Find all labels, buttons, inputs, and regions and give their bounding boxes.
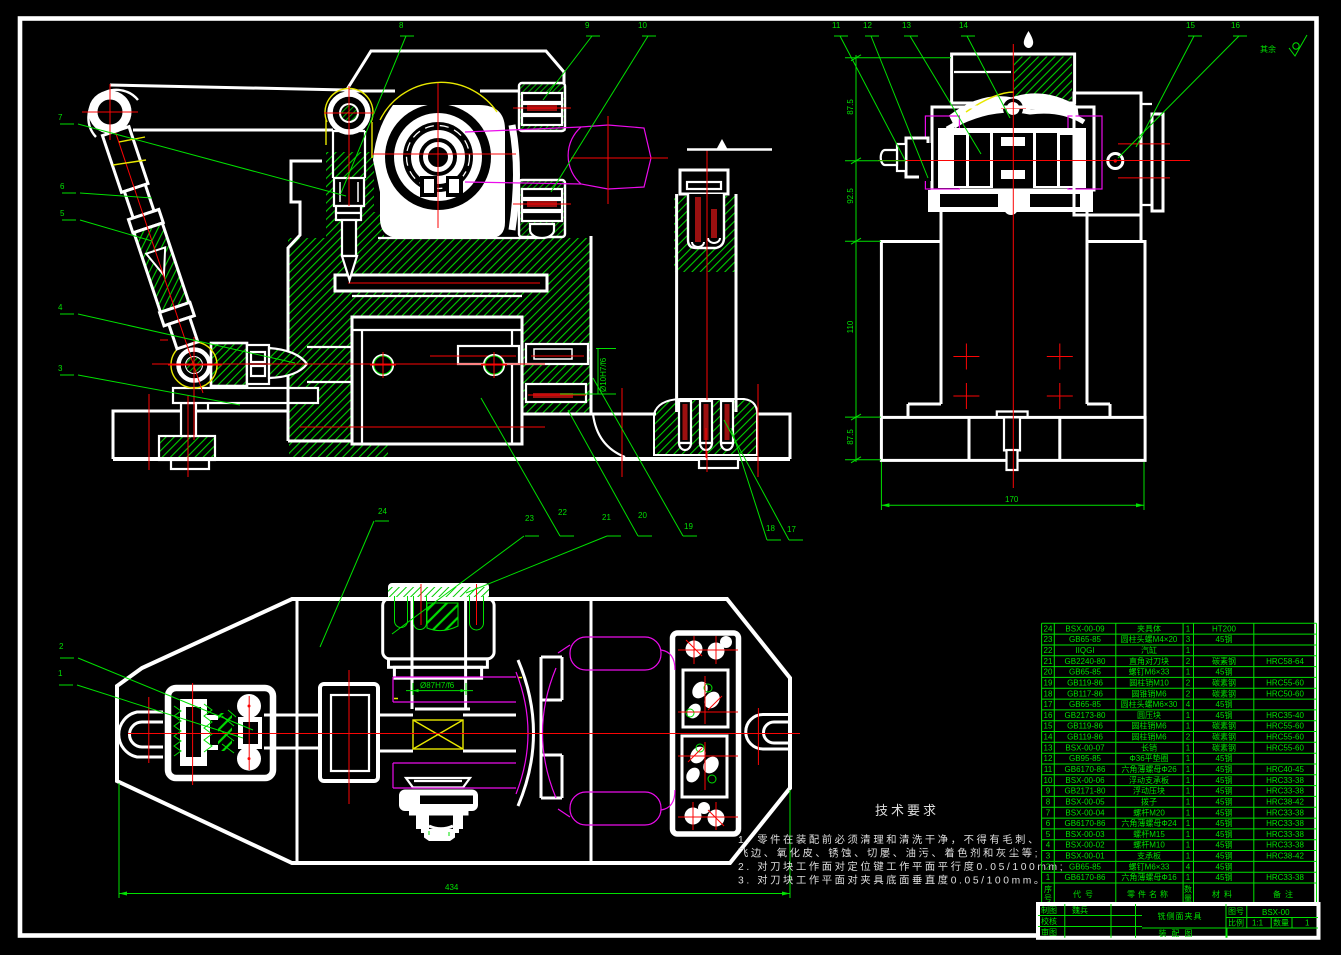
svg-text:支承板: 支承板 <box>1137 851 1161 861</box>
svg-text:碳素钢: 碳素钢 <box>1212 677 1236 687</box>
svg-text:45钢: 45钢 <box>1216 699 1233 709</box>
svg-text:45钢: 45钢 <box>1216 786 1233 796</box>
svg-text:45钢: 45钢 <box>1216 829 1233 839</box>
svg-text:圆柱头螺M6×30: 圆柱头螺M6×30 <box>1121 699 1178 709</box>
svg-text:汽缸: 汽缸 <box>1141 645 1157 655</box>
svg-text:5: 5 <box>1046 830 1051 839</box>
svg-text:13: 13 <box>1044 743 1053 752</box>
svg-text:21: 21 <box>1044 657 1053 666</box>
svg-text:17: 17 <box>1044 700 1053 709</box>
svg-text:4: 4 <box>1186 700 1191 709</box>
svg-text:审图: 审图 <box>1041 927 1057 937</box>
svg-text:材料: 材料 <box>1212 889 1236 899</box>
svg-text:六角薄螺母Φ24: 六角薄螺母Φ24 <box>1121 818 1177 828</box>
svg-text:18: 18 <box>766 524 775 533</box>
svg-text:45钢: 45钢 <box>1216 872 1233 882</box>
svg-text:1: 1 <box>1186 798 1191 807</box>
svg-text:3: 3 <box>1186 635 1191 644</box>
svg-text:装配图: 装配图 <box>1159 928 1198 938</box>
svg-text:22: 22 <box>558 508 567 517</box>
svg-text:BSX-00-07: BSX-00-07 <box>1065 743 1105 752</box>
svg-text:1: 1 <box>1186 624 1191 633</box>
svg-text:4: 4 <box>1046 841 1051 850</box>
svg-text:45钢: 45钢 <box>1216 753 1233 763</box>
svg-text:GB6170-86: GB6170-86 <box>1065 819 1106 828</box>
svg-text:45钢: 45钢 <box>1216 710 1233 720</box>
svg-text:BSX-00-04: BSX-00-04 <box>1065 808 1105 817</box>
svg-text:2. 对刀块工作面对定位键工作平面平行度0.05/100mm: 2. 对刀块工作面对定位键工作平面平行度0.05/100mm; <box>738 860 1065 873</box>
svg-text:碳素钢: 碳素钢 <box>1212 742 1236 752</box>
svg-text:23: 23 <box>525 514 534 523</box>
svg-text:代号: 代号 <box>1073 889 1097 899</box>
svg-text:15: 15 <box>1186 21 1195 30</box>
svg-text:碳素钢: 碳素钢 <box>1212 688 1236 698</box>
svg-text:7: 7 <box>58 113 63 122</box>
svg-text:GB6170-86: GB6170-86 <box>1065 873 1106 882</box>
svg-text:Φ36平垫圈: Φ36平垫圈 <box>1129 753 1168 763</box>
svg-text:6: 6 <box>60 182 65 191</box>
svg-text:HRC50-60: HRC50-60 <box>1266 689 1304 698</box>
svg-text:16: 16 <box>1231 21 1240 30</box>
svg-text:HRC55-60: HRC55-60 <box>1266 678 1304 687</box>
svg-text:铣侧面夹具: 铣侧面夹具 <box>1158 911 1203 921</box>
svg-text:45钢: 45钢 <box>1216 775 1233 785</box>
svg-text:4: 4 <box>58 303 63 312</box>
svg-text:圆柱头螺M4×20: 圆柱头螺M4×20 <box>1121 634 1178 644</box>
svg-text:1: 1 <box>1046 873 1051 882</box>
svg-text:45钢: 45钢 <box>1216 818 1233 828</box>
svg-text:碳素钢: 碳素钢 <box>1212 656 1236 666</box>
svg-text:7: 7 <box>1046 808 1051 817</box>
svg-text:零件名称: 零件名称 <box>1127 889 1171 899</box>
svg-text:圆锥销M6: 圆锥销M6 <box>1131 688 1167 698</box>
svg-text:1: 1 <box>1186 776 1191 785</box>
svg-text:434: 434 <box>445 883 459 892</box>
svg-text:8: 8 <box>399 21 404 30</box>
svg-text:45钢: 45钢 <box>1216 634 1233 644</box>
svg-text:9: 9 <box>585 21 590 30</box>
svg-text:6: 6 <box>1046 819 1051 828</box>
svg-text:螺钉M6×33: 螺钉M6×33 <box>1129 861 1170 871</box>
svg-text:BSX-00-02: BSX-00-02 <box>1065 841 1105 850</box>
svg-text:BSX-00-01: BSX-00-01 <box>1065 852 1105 861</box>
svg-text:GB119-86: GB119-86 <box>1067 678 1103 687</box>
svg-text:浮动支承板: 浮动支承板 <box>1129 775 1169 785</box>
svg-text:HRC33-38: HRC33-38 <box>1266 819 1304 828</box>
svg-text:24: 24 <box>1044 624 1053 633</box>
svg-text:45钢: 45钢 <box>1216 840 1233 850</box>
svg-text:1: 1 <box>58 669 63 678</box>
svg-text:圆柱销M10: 圆柱销M10 <box>1129 677 1169 687</box>
svg-text:制图: 制图 <box>1041 905 1057 915</box>
svg-text:2: 2 <box>1186 678 1191 687</box>
svg-text:11: 11 <box>832 21 841 30</box>
svg-text:1: 1 <box>1186 722 1191 731</box>
svg-text:18: 18 <box>1044 689 1053 698</box>
svg-text:GB95-85: GB95-85 <box>1069 754 1102 763</box>
svg-text:号: 号 <box>1044 894 1052 903</box>
svg-text:45钢: 45钢 <box>1216 861 1233 871</box>
svg-text:14: 14 <box>1044 733 1053 742</box>
svg-text:HRC33-38: HRC33-38 <box>1266 841 1304 850</box>
svg-text:4: 4 <box>1186 862 1191 871</box>
svg-text:1: 1 <box>1186 873 1191 882</box>
svg-text:直角对刀块: 直角对刀块 <box>1129 656 1169 666</box>
svg-text:螺杆M20: 螺杆M20 <box>1133 807 1165 817</box>
svg-text:HRC33-38: HRC33-38 <box>1266 776 1304 785</box>
svg-text:2: 2 <box>59 642 64 651</box>
svg-text:16: 16 <box>1044 711 1053 720</box>
svg-text:GB6170-86: GB6170-86 <box>1065 765 1106 774</box>
svg-text:2: 2 <box>1186 657 1191 666</box>
svg-text:螺钉M6×33: 螺钉M6×33 <box>1129 667 1170 677</box>
svg-text:45钢: 45钢 <box>1216 764 1233 774</box>
svg-text:1: 1 <box>1186 852 1191 861</box>
svg-text:Ø87H7/f6: Ø87H7/f6 <box>420 681 455 690</box>
svg-text:12: 12 <box>863 21 872 30</box>
svg-text:HRC38-42: HRC38-42 <box>1266 798 1304 807</box>
svg-text:圆压块: 圆压块 <box>1137 710 1161 720</box>
svg-text:2: 2 <box>1186 689 1191 698</box>
svg-text:10: 10 <box>638 21 647 30</box>
svg-text:GB119-86: GB119-86 <box>1067 722 1103 731</box>
svg-text:其余: 其余 <box>1260 44 1276 54</box>
svg-text:87.5: 87.5 <box>846 429 855 445</box>
svg-text:1. 零件在装配前必须清理和清洗干净，不得有毛刺、: 1. 零件在装配前必须清理和清洗干净，不得有毛刺、 <box>738 833 1041 846</box>
svg-text:GB65-85: GB65-85 <box>1069 862 1102 871</box>
svg-text:1: 1 <box>1186 743 1191 752</box>
svg-text:HRC33-38: HRC33-38 <box>1266 787 1304 796</box>
svg-text:17: 17 <box>787 525 796 534</box>
svg-text:BSX-00-05: BSX-00-05 <box>1065 798 1105 807</box>
svg-text:1: 1 <box>1186 787 1191 796</box>
svg-text:比例: 比例 <box>1228 918 1244 928</box>
svg-text:GB2173-80: GB2173-80 <box>1065 711 1106 720</box>
svg-text:HRC33-38: HRC33-38 <box>1266 830 1304 839</box>
svg-text:GB65-85: GB65-85 <box>1069 700 1102 709</box>
svg-text:HRC40-45: HRC40-45 <box>1266 765 1304 774</box>
svg-text:8: 8 <box>1046 798 1051 807</box>
svg-text:BSX-00-09: BSX-00-09 <box>1065 624 1105 633</box>
svg-text:10: 10 <box>1044 776 1053 785</box>
svg-text:1: 1 <box>1186 765 1191 774</box>
svg-text:2: 2 <box>1046 862 1051 871</box>
svg-text:3. 对刀块工作平面对夹具底面垂直度0.05/100mm。: 3. 对刀块工作平面对夹具底面垂直度0.05/100mm。 <box>738 874 1047 887</box>
svg-text:BSX-00: BSX-00 <box>1262 908 1290 917</box>
svg-text:170: 170 <box>1005 495 1019 504</box>
svg-text:110: 110 <box>846 320 855 333</box>
svg-text:备注: 备注 <box>1273 889 1297 899</box>
svg-text:3: 3 <box>58 364 63 373</box>
svg-text:1: 1 <box>1186 830 1191 839</box>
svg-text:GB2171-80: GB2171-80 <box>1065 787 1106 796</box>
svg-text:BSX-00-06: BSX-00-06 <box>1065 776 1105 785</box>
svg-text:HRC55-60: HRC55-60 <box>1266 722 1304 731</box>
svg-text:HRC33-38: HRC33-38 <box>1266 808 1304 817</box>
svg-text:15: 15 <box>1044 722 1053 731</box>
svg-text:1: 1 <box>1186 819 1191 828</box>
svg-text:45钢: 45钢 <box>1216 797 1233 807</box>
svg-text:19: 19 <box>1044 678 1053 687</box>
svg-text:飞边、氧化皮、锈蚀、切屡、油污、着色剂和灰尘等;: 飞边、氧化皮、锈蚀、切屡、油污、着色剂和灰尘等; <box>738 847 1040 860</box>
svg-text:碳素钢: 碳素钢 <box>1212 732 1236 742</box>
svg-text:9: 9 <box>1046 787 1051 796</box>
svg-text:HRC38-42: HRC38-42 <box>1266 852 1304 861</box>
svg-text:IIQGI: IIQGI <box>1075 646 1094 655</box>
svg-text:20: 20 <box>1044 668 1053 677</box>
svg-text:45钢: 45钢 <box>1216 807 1233 817</box>
svg-text:夹具体: 夹具体 <box>1137 623 1161 633</box>
svg-text:校核: 校核 <box>1041 916 1057 926</box>
svg-text:23: 23 <box>1044 635 1053 644</box>
svg-text:45钢: 45钢 <box>1216 851 1233 861</box>
svg-text:图号: 图号 <box>1228 907 1244 916</box>
svg-text:21: 21 <box>602 513 611 522</box>
svg-text:1: 1 <box>1186 808 1191 817</box>
svg-text:数: 数 <box>1184 884 1192 894</box>
svg-text:14: 14 <box>959 21 968 30</box>
svg-text:六角薄螺母Φ16: 六角薄螺母Φ16 <box>1121 872 1177 882</box>
svg-text:24: 24 <box>378 507 387 516</box>
svg-text:1: 1 <box>1186 841 1191 850</box>
svg-text:碳素钢: 碳素钢 <box>1212 721 1236 731</box>
svg-text:12: 12 <box>1044 754 1053 763</box>
svg-text:魏兵: 魏兵 <box>1072 905 1088 915</box>
svg-text:技术要求: 技术要求 <box>875 803 939 818</box>
svg-text:1: 1 <box>1186 754 1191 763</box>
svg-text:HRC55-60: HRC55-60 <box>1266 743 1304 752</box>
svg-text:BSX-00-03: BSX-00-03 <box>1065 830 1105 839</box>
svg-text:浮动压块: 浮动压块 <box>1133 786 1165 796</box>
svg-text:GB65-85: GB65-85 <box>1069 668 1102 677</box>
svg-text:19: 19 <box>684 522 693 531</box>
svg-text:22: 22 <box>1044 646 1053 655</box>
svg-text:圆柱销M6: 圆柱销M6 <box>1131 721 1167 731</box>
svg-text:1: 1 <box>1186 711 1191 720</box>
svg-text:92.5: 92.5 <box>846 188 855 204</box>
svg-text:HT200: HT200 <box>1212 624 1237 633</box>
svg-text:HRC33-38: HRC33-38 <box>1266 873 1304 882</box>
svg-text:螺杆M15: 螺杆M15 <box>1133 829 1165 839</box>
svg-text:20: 20 <box>638 511 647 520</box>
svg-text:87.5: 87.5 <box>846 99 855 115</box>
svg-text:GB119-86: GB119-86 <box>1067 733 1103 742</box>
svg-text:1: 1 <box>1305 919 1310 928</box>
svg-text:HRC35-40: HRC35-40 <box>1266 711 1304 720</box>
svg-text:数量: 数量 <box>1273 918 1289 928</box>
svg-text:GB117-86: GB117-86 <box>1067 689 1103 698</box>
svg-text:序: 序 <box>1044 884 1052 894</box>
svg-text:拨子: 拨子 <box>1141 797 1157 807</box>
svg-text:螺杆M10: 螺杆M10 <box>1133 840 1165 850</box>
svg-text:HRC55-60: HRC55-60 <box>1266 733 1304 742</box>
svg-text:量: 量 <box>1184 894 1192 903</box>
svg-text:1: 1 <box>1186 668 1191 677</box>
svg-text:5: 5 <box>60 209 65 218</box>
svg-text:GB2240-80: GB2240-80 <box>1065 657 1106 666</box>
svg-text:2: 2 <box>1186 733 1191 742</box>
svg-text:六角薄螺母Φ26: 六角薄螺母Φ26 <box>1121 764 1177 774</box>
svg-text:11: 11 <box>1044 765 1053 774</box>
svg-text:圆柱销M6: 圆柱销M6 <box>1131 732 1167 742</box>
svg-text:1: 1 <box>1186 646 1191 655</box>
svg-text:45钢: 45钢 <box>1216 667 1233 677</box>
svg-text:1:1: 1:1 <box>1252 919 1264 928</box>
svg-text:长销: 长销 <box>1141 742 1157 752</box>
svg-text:Ø10H7/f6: Ø10H7/f6 <box>599 357 608 392</box>
svg-text:HRC58-64: HRC58-64 <box>1266 657 1304 666</box>
svg-text:3: 3 <box>1046 852 1051 861</box>
svg-text:GB65-85: GB65-85 <box>1069 635 1102 644</box>
svg-text:13: 13 <box>902 21 911 30</box>
